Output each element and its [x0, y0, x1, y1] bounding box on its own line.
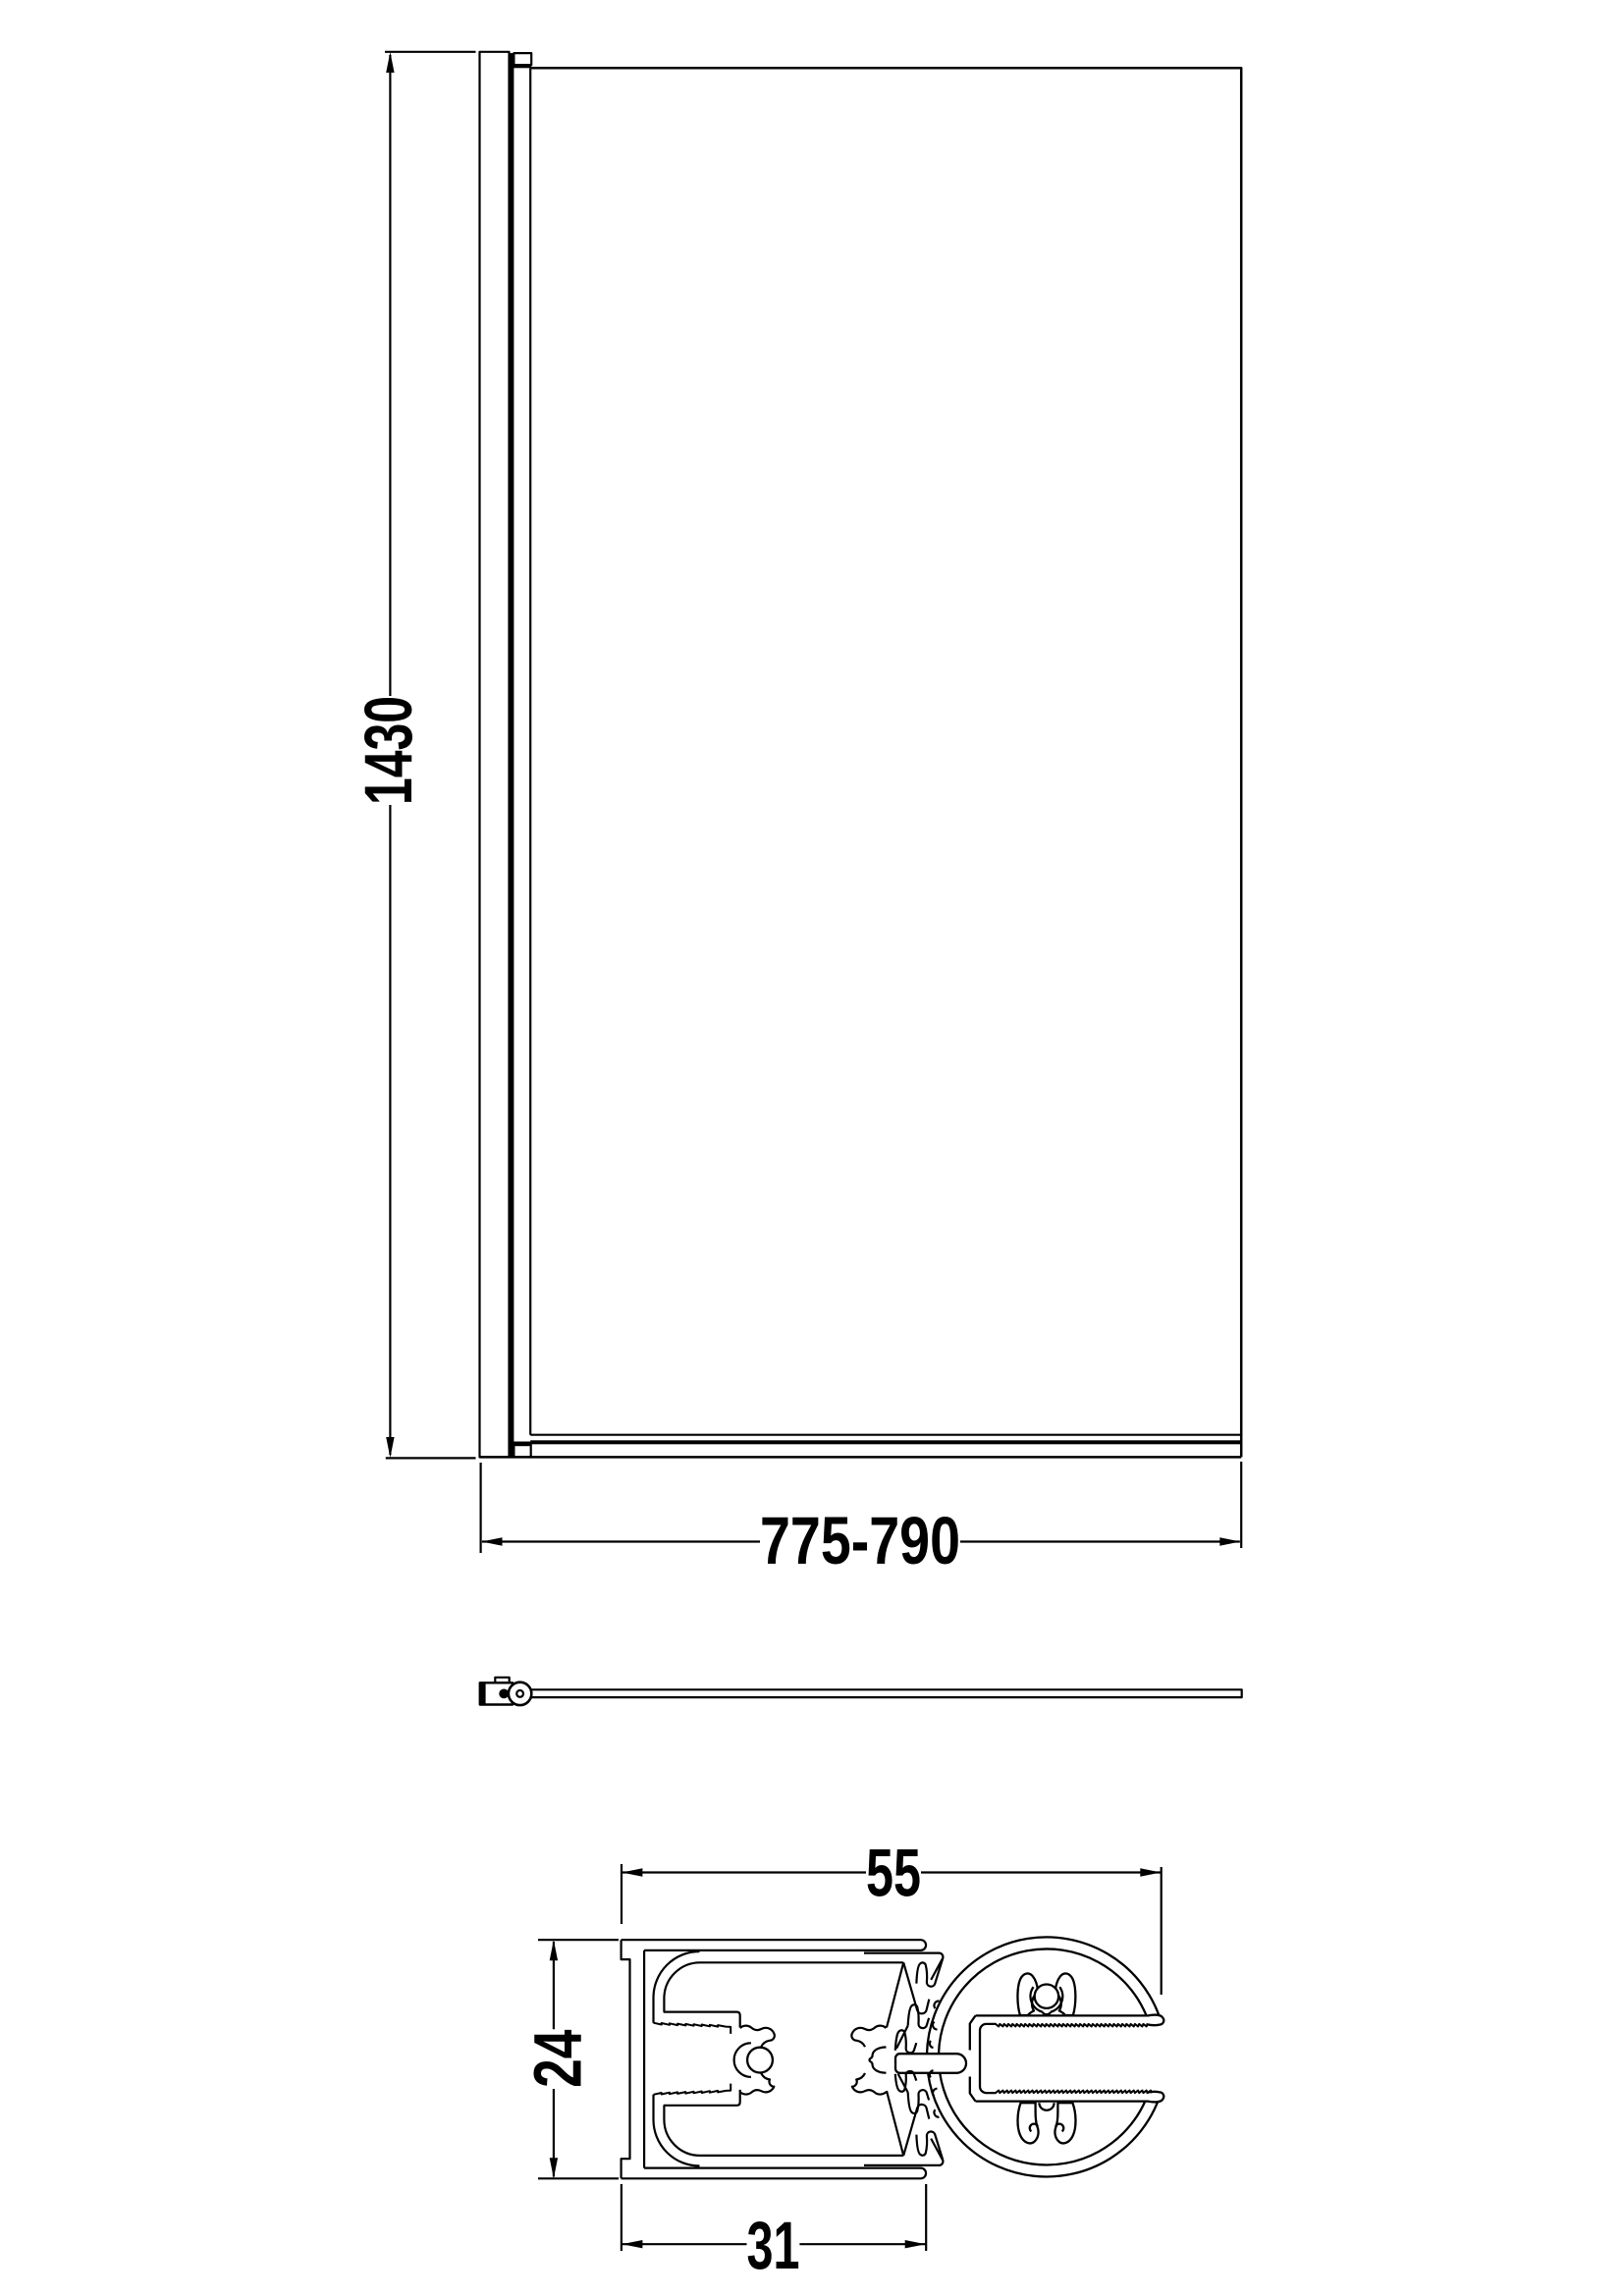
- svg-text:1430: 1430: [351, 696, 426, 805]
- svg-text:775-790: 775-790: [760, 1503, 960, 1578]
- svg-text:55: 55: [866, 1836, 921, 1911]
- svg-text:24: 24: [520, 2030, 596, 2088]
- svg-text:31: 31: [747, 2208, 800, 2283]
